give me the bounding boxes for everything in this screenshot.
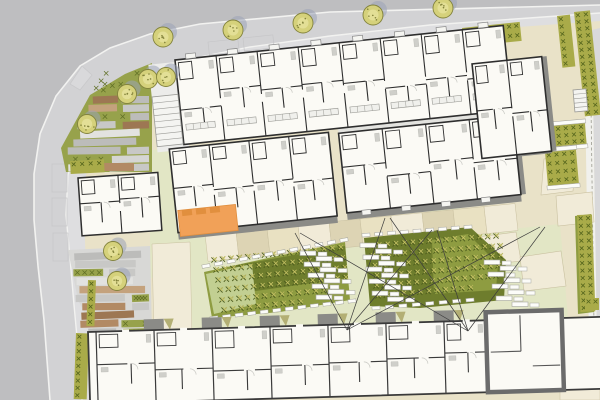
bottom-building-row: [88, 306, 600, 400]
site-plan-svg: [0, 0, 600, 400]
stair-glyph: [573, 89, 588, 112]
hedge-block: [70, 159, 105, 174]
site-plan-canvas: [0, 0, 600, 400]
stair-glyph: [152, 94, 183, 146]
hedge-block: [86, 280, 96, 326]
hedge-block: [74, 333, 89, 399]
west-building-block: [78, 172, 162, 235]
hedge-block: [585, 298, 599, 310]
highlighted-orange-unit: [178, 204, 238, 236]
